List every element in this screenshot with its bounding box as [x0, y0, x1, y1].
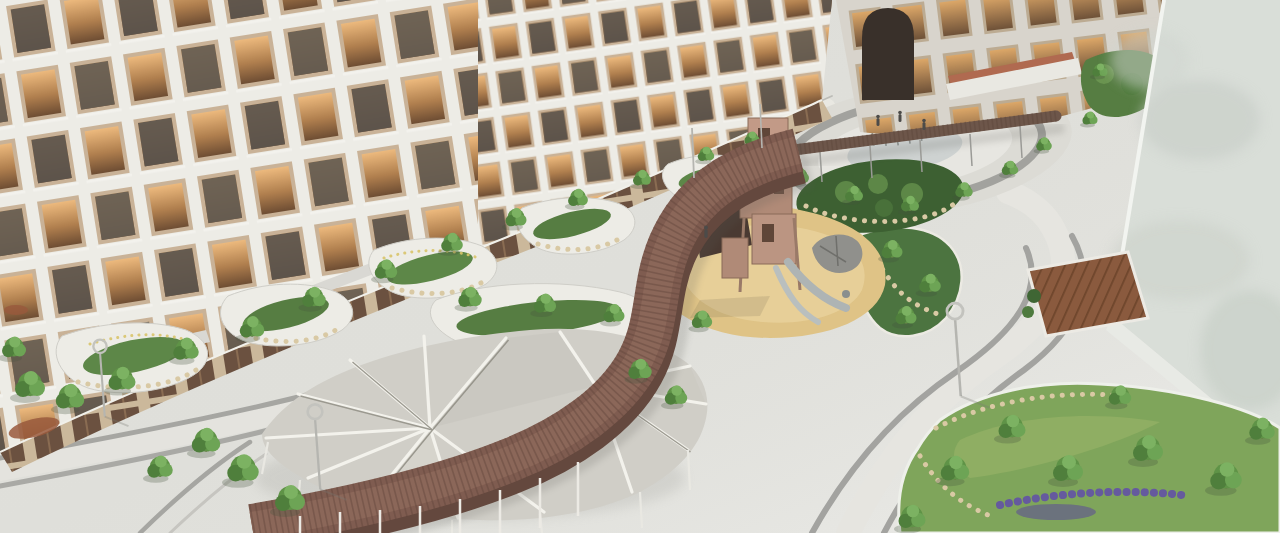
courtyard-render	[0, 0, 1280, 533]
spring-rider	[842, 290, 850, 298]
arched-passage	[862, 8, 914, 100]
